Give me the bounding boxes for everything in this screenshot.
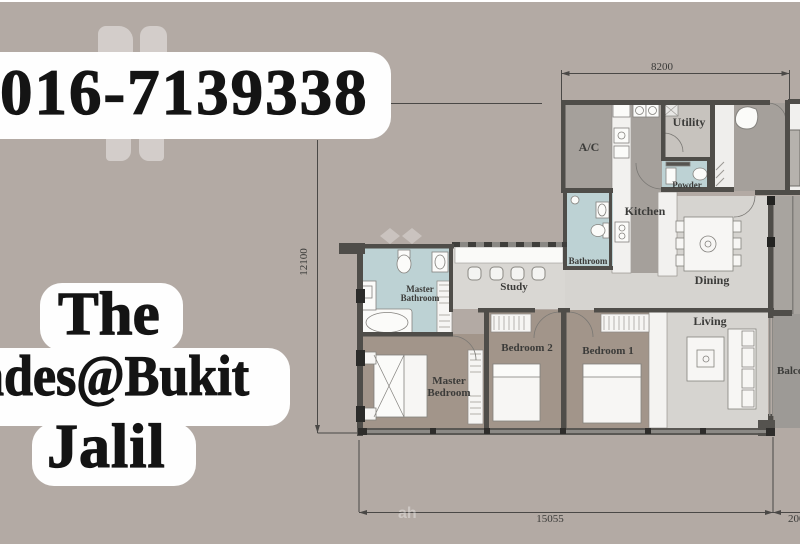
svg-text:Balcony: Balcony (777, 365, 800, 377)
svg-text:Bathroom: Bathroom (569, 256, 608, 266)
svg-text:15055: 15055 (536, 513, 564, 525)
svg-text:Bathroom: Bathroom (401, 293, 440, 303)
svg-text:Utility: Utility (673, 115, 706, 129)
svg-text:A/C: A/C (579, 140, 600, 154)
svg-text:12100: 12100 (298, 248, 310, 276)
svg-text:Master: Master (432, 375, 466, 387)
svg-text:Powder: Powder (672, 180, 702, 190)
svg-text:Living: Living (693, 314, 726, 328)
svg-text:Bedroom: Bedroom (427, 387, 470, 399)
svg-text:Bedroom 1: Bedroom 1 (582, 345, 633, 357)
svg-text:2000: 2000 (788, 513, 800, 525)
svg-text:Dining: Dining (695, 273, 730, 287)
svg-text:Kitchen: Kitchen (625, 204, 666, 218)
svg-text:Study: Study (500, 281, 528, 293)
svg-text:ah: ah (398, 505, 417, 522)
svg-text:8200: 8200 (651, 61, 674, 73)
svg-text:Bedroom 2: Bedroom 2 (501, 342, 553, 354)
